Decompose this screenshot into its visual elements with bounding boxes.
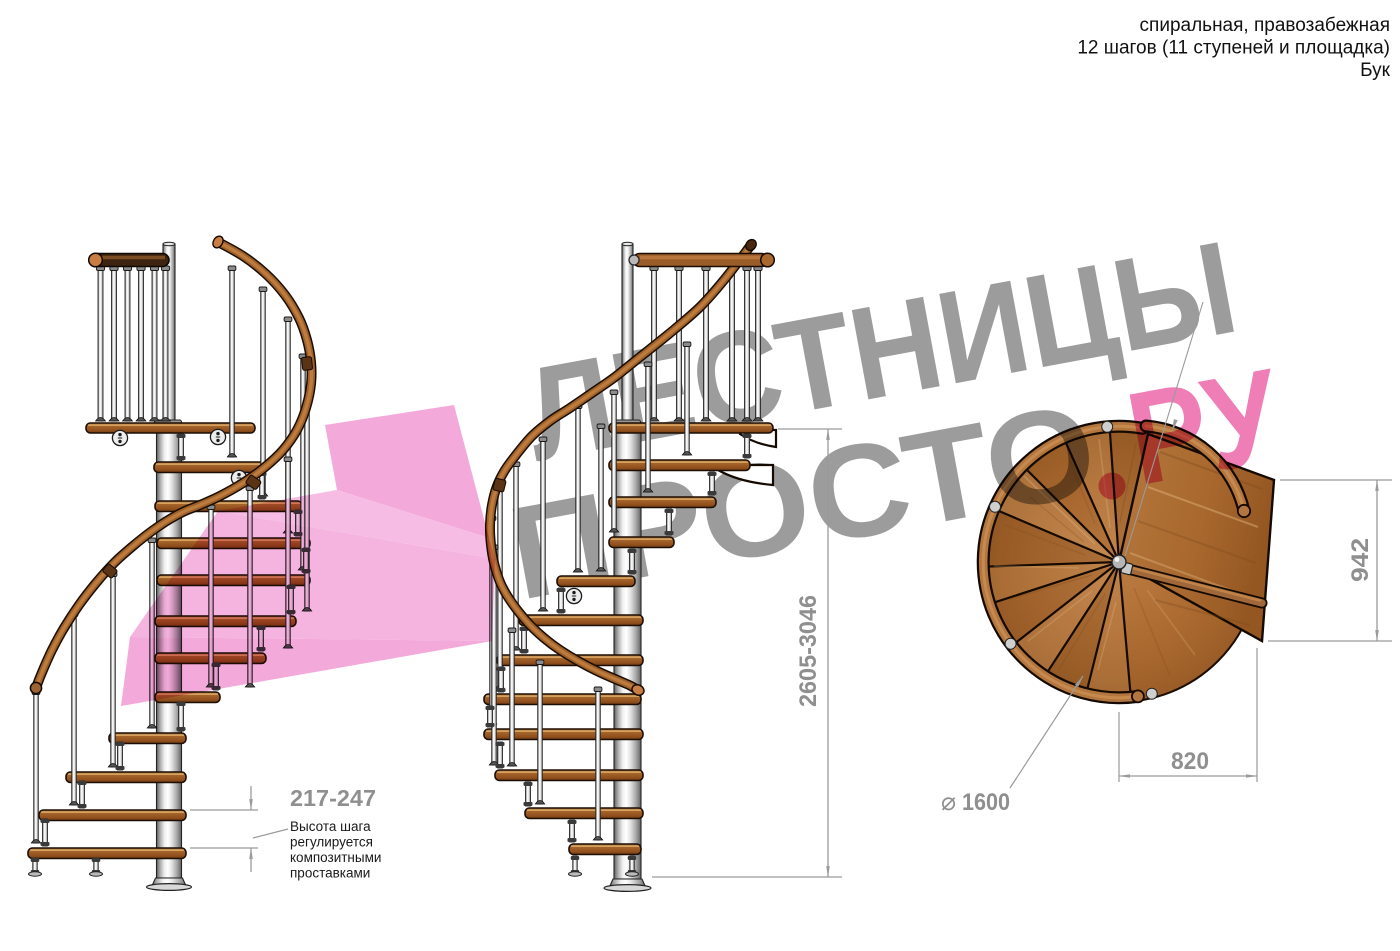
svg-text:217-247: 217-247 bbox=[290, 785, 376, 811]
svg-text:Высота шага: Высота шага bbox=[290, 819, 371, 834]
svg-text:820: 820 bbox=[1171, 748, 1209, 775]
svg-text:12 шагов (11 ступеней и площад: 12 шагов (11 ступеней и площадка) bbox=[1077, 37, 1390, 58]
svg-text:942: 942 bbox=[1347, 538, 1374, 582]
svg-text:спиральная, правозабежная: спиральная, правозабежная bbox=[1140, 15, 1390, 36]
svg-text:2605-3046: 2605-3046 bbox=[795, 595, 822, 707]
svg-text:композитными: композитными bbox=[290, 850, 381, 865]
svg-text:проставками: проставками bbox=[290, 866, 370, 881]
svg-text:⌀ 1600: ⌀ 1600 bbox=[941, 788, 1010, 816]
svg-text:Бук: Бук bbox=[1360, 60, 1391, 81]
svg-text:регулируется: регулируется bbox=[290, 835, 373, 850]
